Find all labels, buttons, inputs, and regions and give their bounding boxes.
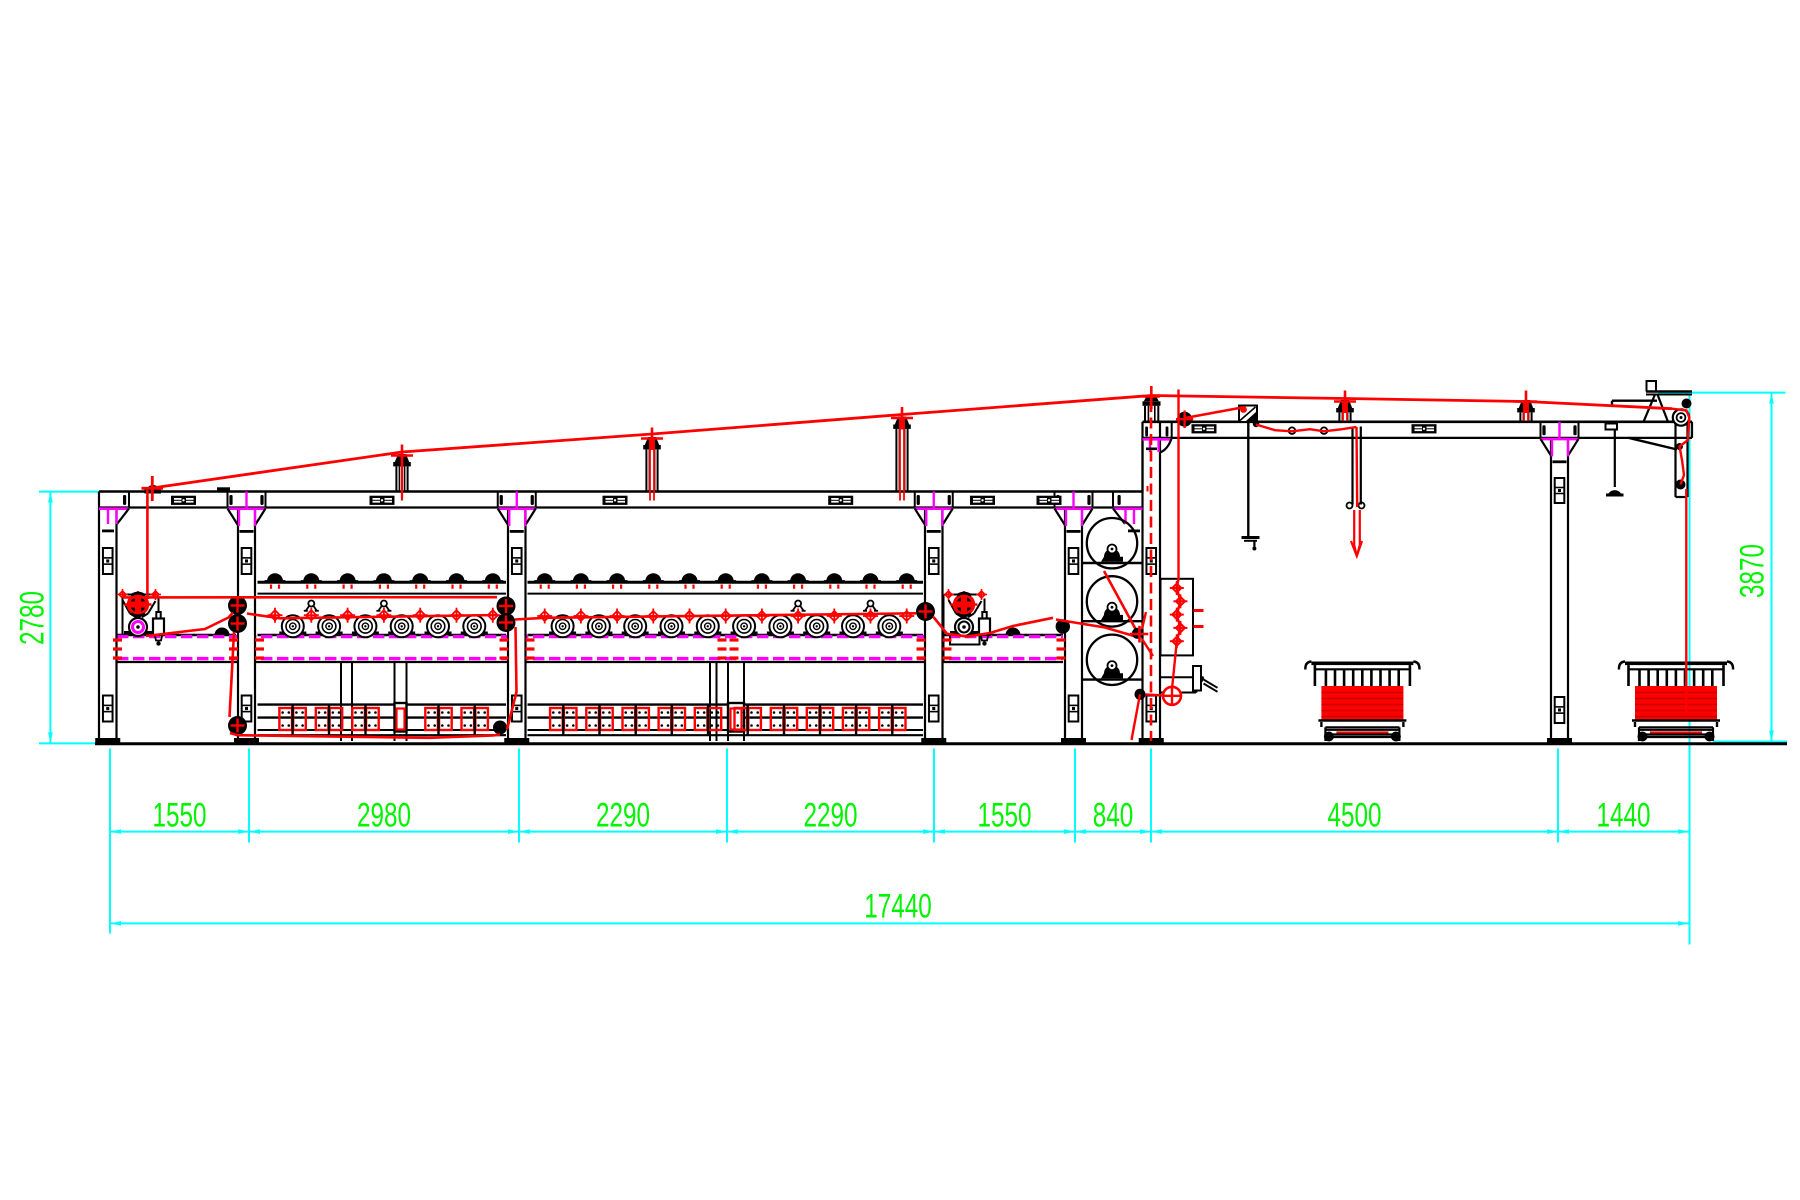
svg-text:3870: 3870 <box>1734 544 1772 598</box>
svg-text:1550: 1550 <box>153 796 207 834</box>
svg-text:2780: 2780 <box>14 591 52 645</box>
svg-text:2980: 2980 <box>357 796 411 834</box>
svg-text:1440: 1440 <box>1597 796 1651 834</box>
svg-text:17440: 17440 <box>864 888 932 926</box>
svg-text:2290: 2290 <box>596 796 650 834</box>
svg-text:4500: 4500 <box>1328 796 1382 834</box>
svg-text:2290: 2290 <box>804 796 858 834</box>
svg-text:1550: 1550 <box>978 796 1032 834</box>
svg-text:840: 840 <box>1093 796 1134 834</box>
